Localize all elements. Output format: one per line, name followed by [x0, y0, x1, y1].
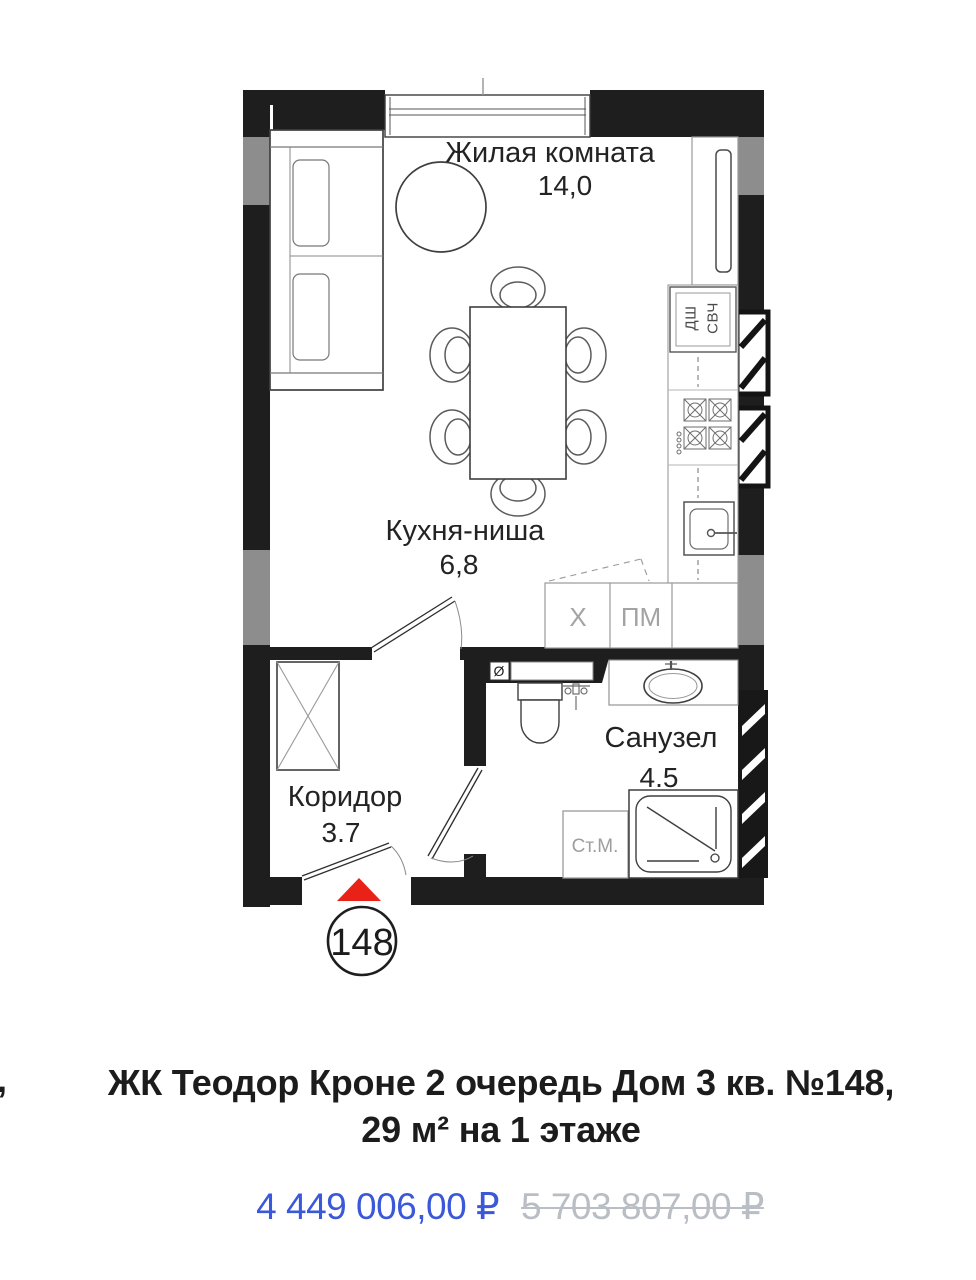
vent-symbol: Ø — [494, 663, 505, 679]
dining-set — [430, 267, 606, 516]
dw-column-label: ДШ — [682, 306, 699, 331]
sofa — [270, 130, 383, 390]
price-old: 5 703 807,00 ₽ — [521, 1185, 764, 1228]
room-corridor-area: 3.7 — [322, 817, 361, 848]
toilet — [518, 683, 562, 743]
price-row: 4 449 006,00 ₽ 5 703 807,00 ₽ — [0, 1185, 976, 1228]
listing-title-line1: ЖК Теодор Кроне 2 очередь Дом 3 кв. №148… — [26, 1059, 976, 1106]
kitchen-sink — [684, 502, 737, 555]
wardrobe — [277, 662, 339, 770]
louver-vent-upper — [737, 312, 768, 394]
apartment-badge-number: 148 — [330, 922, 393, 964]
floor-plan: X ПМ ДШ СВЧ Ø — [235, 75, 780, 980]
door-bathroom — [428, 768, 482, 862]
room-bathroom-area: 4.5 — [640, 762, 679, 793]
door-entrance — [302, 843, 406, 880]
bathroom-fixtures: Ø Ст.М. — [486, 658, 738, 878]
louver-ladder — [739, 690, 768, 878]
price-current: 4 449 006,00 ₽ — [256, 1185, 499, 1228]
fridge-label: X — [569, 602, 586, 632]
round-table — [396, 162, 486, 252]
washing-machine: Ст.М. — [563, 811, 628, 878]
louver-vent-lower — [737, 408, 768, 486]
bathroom-sink — [609, 660, 738, 705]
room-kitchen-name: Кухня-ниша — [386, 515, 546, 547]
bath-faucet — [563, 684, 590, 710]
door-living-corridor — [371, 597, 462, 652]
listing-title-line2: 29 м² на 1 этаже — [26, 1106, 976, 1153]
room-corridor-name: Коридор — [288, 781, 403, 813]
listing-title: ЖК Теодор Кроне 2 очередь Дом 3 кв. №148… — [0, 1059, 976, 1153]
microwave-column-label: СВЧ — [704, 302, 721, 334]
entrance-marker-icon — [337, 878, 381, 901]
window — [385, 78, 590, 137]
room-living-name: Жилая комната — [445, 137, 655, 169]
room-kitchen-area: 6,8 — [440, 549, 479, 580]
room-living-area: 14,0 — [538, 170, 593, 201]
shower — [629, 790, 738, 878]
floor-plan-container: X ПМ ДШ СВЧ Ø — [0, 0, 976, 1010]
room-bathroom-name: Санузел — [605, 722, 718, 754]
tv-console — [692, 137, 738, 285]
dishwasher-label: ПМ — [621, 602, 661, 632]
washing-machine-label: Ст.М. — [572, 836, 619, 857]
apartment-badge: 148 — [328, 907, 396, 975]
